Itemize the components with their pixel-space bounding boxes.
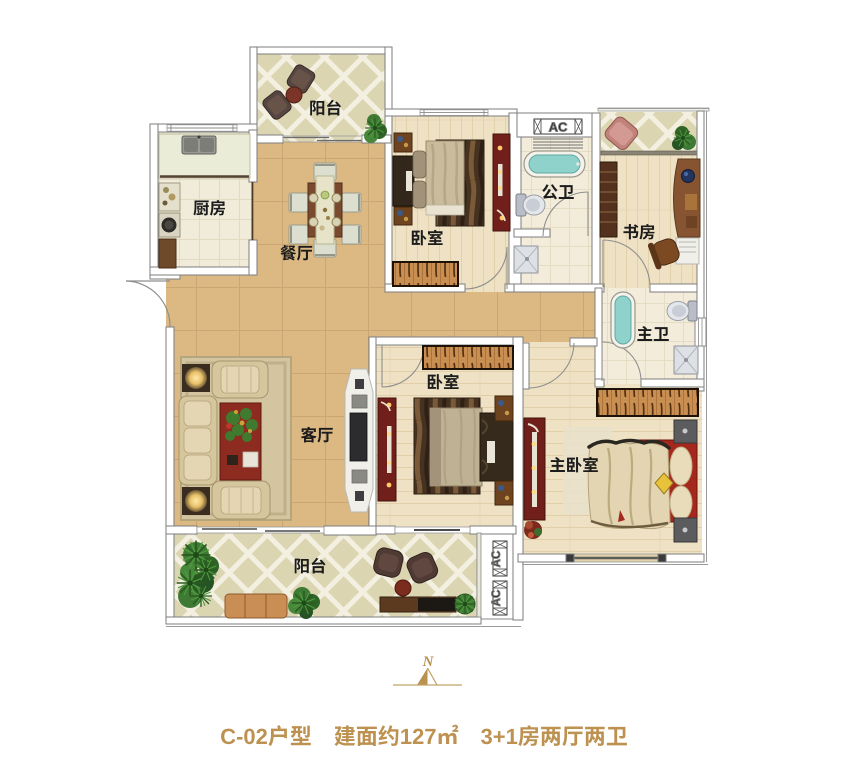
svg-text:N: N (422, 654, 435, 670)
svg-text:AC: AC (491, 590, 503, 607)
svg-text:AC: AC (549, 120, 568, 135)
svg-text:AC: AC (491, 551, 503, 568)
